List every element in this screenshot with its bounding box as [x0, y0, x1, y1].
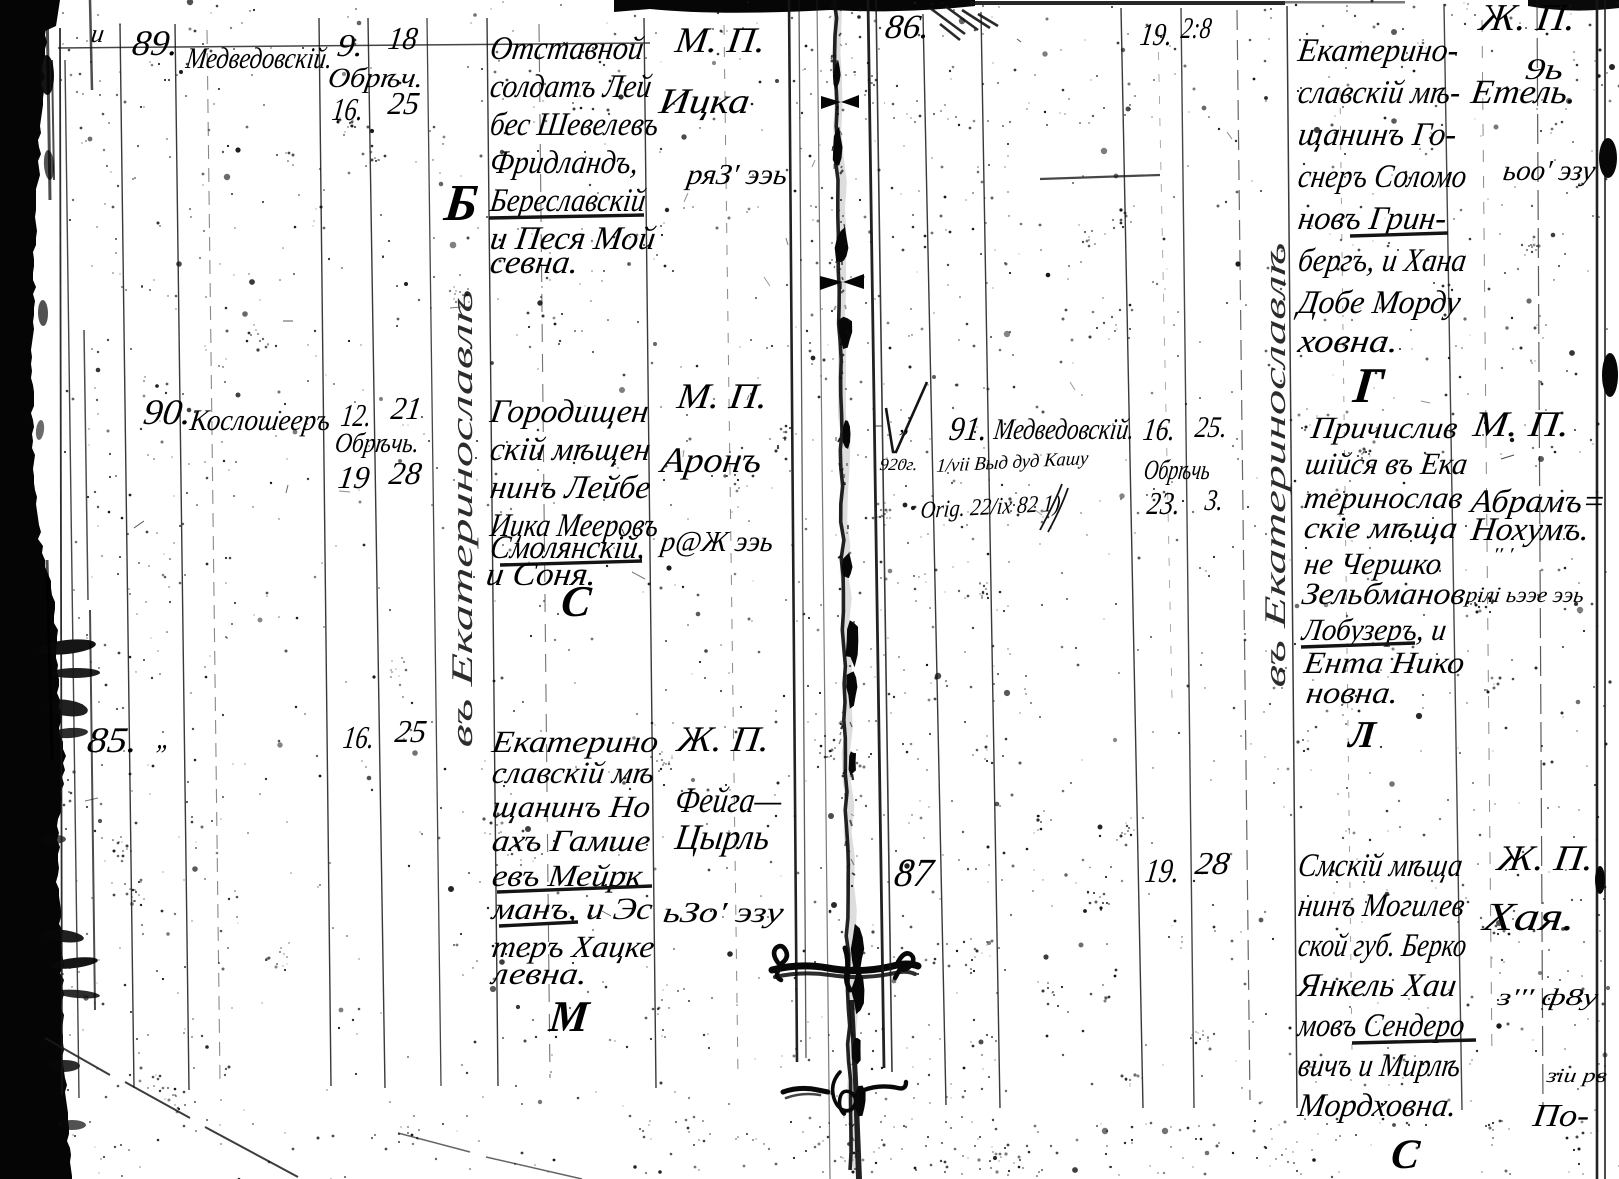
svg-text:91.: 91.: [947, 411, 990, 448]
svg-text:Цырль: Цырль: [672, 817, 773, 857]
svg-text:М: М: [546, 992, 593, 1041]
svg-text:ахъ Гамше: ахъ Гамше: [490, 823, 653, 858]
svg-text:славскій мѣ-: славскій мѣ-: [1296, 74, 1463, 111]
svg-text:Городищен: Городищен: [487, 393, 651, 430]
svg-text:Фейга—: Фейга—: [673, 780, 785, 820]
svg-text:Отставной: Отставной: [488, 30, 647, 67]
svg-text:ьЗо' эзу: ьЗо' эзу: [661, 897, 786, 929]
svg-text:16.: 16.: [1141, 411, 1178, 447]
svg-text:Ж. П.: Ж. П.: [674, 719, 773, 759]
svg-text:Б: Б: [441, 175, 481, 232]
svg-text:Фридландъ,: Фридландъ,: [488, 144, 641, 181]
svg-text:М. П.: М. П.: [672, 20, 769, 60]
svg-text:90.: 90.: [141, 392, 195, 432]
svg-text:16.: 16.: [330, 91, 366, 127]
svg-text:мовъ Сендеро: мовъ Сендеро: [1295, 1007, 1467, 1044]
svg-text:и: и: [89, 19, 106, 48]
svg-text:Orig. 22/іх 82 1): Orig. 22/іх 82 1): [919, 491, 1061, 524]
svg-text:Медведовскій.: Медведовскій.: [183, 41, 335, 75]
svg-text:Обрѣчь: Обрѣчь: [1142, 455, 1212, 486]
svg-text:М. П.: М. П.: [674, 376, 771, 416]
svg-text:шійся въ Ека: шійся въ Ека: [1303, 446, 1470, 481]
svg-text:Етель.: Етель.: [1468, 74, 1579, 111]
svg-text:вичъ и Мирлѣ: вичъ и Мирлѣ: [1296, 1047, 1463, 1084]
svg-text:86.: 86.: [883, 9, 932, 46]
svg-text:Ж. П.: Ж. П.: [1494, 838, 1597, 878]
svg-text:1/vіі Выд дуд Кашу: 1/vіі Выд дуд Кашу: [936, 448, 1090, 477]
svg-text:новъ Грин-: новъ Грин-: [1296, 200, 1449, 237]
svg-text:Екатерино-: Екатерино-: [1295, 32, 1461, 69]
svg-text:скіе мѣща: скіе мѣща: [1302, 510, 1460, 545]
svg-text:Кослошееръ: Кослошееръ: [187, 403, 333, 437]
svg-text:'' ': '' ': [1491, 544, 1515, 564]
svg-text:Нохумъ.: Нохумъ.: [1468, 511, 1592, 548]
svg-text:„: „: [155, 721, 174, 755]
svg-text:С: С: [559, 577, 594, 626]
svg-text:Смскій мѣща: Смскій мѣща: [1296, 847, 1465, 884]
svg-text:9.: 9.: [335, 27, 366, 63]
svg-text:25.: 25.: [1193, 410, 1230, 444]
svg-text:Лобузеръ, и: Лобузеръ, и: [1299, 612, 1449, 647]
svg-text:солдатъ Лей: солдатъ Лей: [488, 68, 655, 105]
svg-text:3.: 3.: [1202, 483, 1226, 517]
svg-text:щанинъ Го-: щанинъ Го-: [1296, 116, 1459, 153]
svg-text:16.: 16.: [341, 719, 377, 755]
svg-text:снеръ Соломо: снеръ Соломо: [1296, 158, 1469, 195]
svg-text:рілі ьээе ээь: рілі ьээе ээь: [1462, 582, 1586, 607]
svg-text:щанинъ Но: щанинъ Но: [490, 789, 653, 824]
svg-text:Ж. П.: Ж. П.: [1476, 0, 1579, 39]
svg-text:ховна.: ховна.: [1295, 323, 1401, 360]
svg-text:18: 18: [386, 20, 420, 56]
svg-text:По-: По-: [1530, 1097, 1592, 1133]
svg-text:славскій мѣ: славскій мѣ: [490, 755, 657, 790]
svg-text:Г: Г: [1350, 357, 1388, 413]
svg-text:920г.: 920г.: [878, 455, 919, 474]
svg-text:89.: 89.: [130, 23, 182, 63]
svg-text:21: 21: [389, 390, 424, 426]
svg-text:въ Екатеринославлѣ: въ Екатеринославлѣ: [445, 287, 479, 749]
svg-text:скій мѣщен: скій мѣщен: [488, 431, 653, 468]
svg-text:бергъ, и Хана: бергъ, и Хана: [1296, 242, 1469, 279]
svg-text:бес Шевелевъ: бес Шевелевъ: [488, 106, 661, 143]
svg-text:Причислив: Причислив: [1308, 410, 1460, 445]
svg-text:Аронъ: Аронъ: [657, 440, 765, 480]
svg-text:Мордховна.: Мордховна.: [1295, 1087, 1459, 1124]
svg-text:севна.: севна.: [488, 244, 581, 281]
svg-text:87: 87: [892, 850, 938, 895]
svg-text:19: 19: [336, 459, 372, 495]
svg-text:нинъ Могилев: нинъ Могилев: [1296, 887, 1467, 924]
svg-text:Янкель Хаи: Янкель Хаи: [1294, 967, 1459, 1004]
svg-text:ряЗ' ээь: ряЗ' ээь: [683, 159, 790, 191]
svg-text:ской губ. Берко: ской губ. Берко: [1296, 927, 1469, 964]
svg-text:Ицка: Ицка: [656, 81, 753, 121]
svg-text:„: „: [898, 412, 913, 437]
svg-text:Медведовскій.: Медведовскій.: [991, 412, 1137, 446]
svg-text:19.: 19.: [1143, 853, 1182, 890]
svg-text:Екатерино: Екатерино: [489, 724, 661, 759]
svg-text:въ Екатеринославлѣ: въ Екатеринославлѣ: [1258, 240, 1292, 689]
svg-text:С: С: [1389, 1131, 1423, 1178]
svg-text:23.: 23.: [1145, 485, 1183, 521]
svg-text:28: 28: [1193, 845, 1232, 881]
svg-text:Береславскій: Береславскій: [487, 182, 648, 219]
svg-text:Л: Л: [1345, 714, 1379, 756]
svg-text:28: 28: [387, 455, 424, 491]
svg-text:85.: 85.: [85, 720, 141, 760]
svg-text:2:8: 2:8: [1179, 11, 1214, 45]
svg-text:ьоо' эзу: ьоо' эзу: [1501, 155, 1598, 187]
svg-text:р@Ж ээь: р@Ж ээь: [657, 526, 775, 558]
svg-text:Добе Морду: Добе Морду: [1293, 284, 1463, 321]
svg-text:25: 25: [386, 85, 422, 121]
svg-text:нинъ Лейбе: нинъ Лейбе: [488, 469, 653, 506]
